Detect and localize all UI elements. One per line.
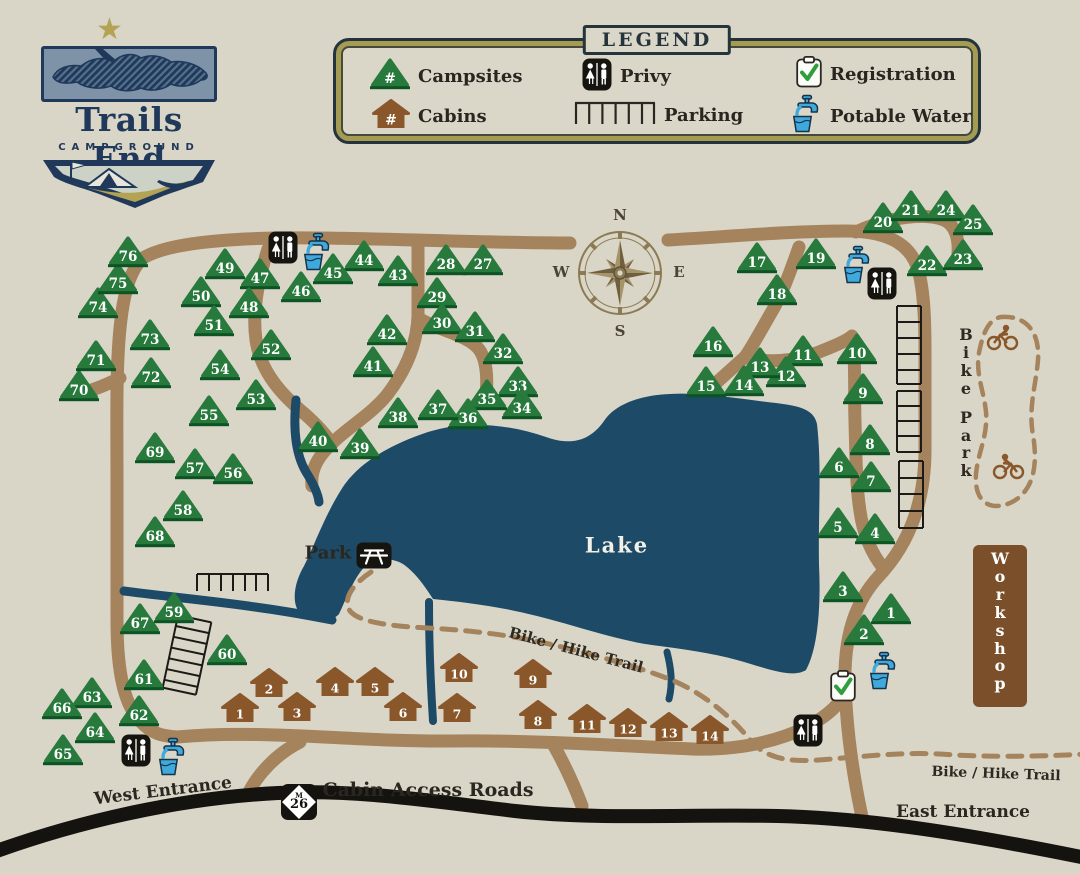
compass-rose xyxy=(579,232,661,314)
legend-item-campsites: # Campsites xyxy=(370,58,523,95)
road-inner-right-lake xyxy=(716,357,745,383)
campsite-tree-icon: # xyxy=(370,58,410,95)
legend-item-parking: Parking xyxy=(574,101,743,129)
legend-item-privy: Privy xyxy=(582,58,671,95)
legend-item-registration: Registration xyxy=(796,56,956,92)
compass-east-label: E xyxy=(673,263,684,281)
campground-map: 1234567891011121314151617181920212223242… xyxy=(0,0,1080,875)
legend-privy-label: Privy xyxy=(620,66,671,87)
privy-icon xyxy=(582,58,612,95)
legend-item-potable-water: Potable Water xyxy=(792,94,972,138)
legend-cabins-label: Cabins xyxy=(418,106,487,127)
legend-panel: LEGEND # Campsites # Cabins Privy Parkin… xyxy=(333,38,981,144)
registration-clipboard-icon xyxy=(796,56,822,92)
star-icon: ★ xyxy=(96,12,123,47)
cabin-access-roads-label: Cabin Access Roads xyxy=(322,779,533,801)
stream-southeast xyxy=(667,652,671,699)
m26-number: 26 xyxy=(290,799,308,811)
parking-lot-west xyxy=(163,615,212,694)
logo-emblem xyxy=(41,156,217,210)
legend-potable-water-label: Potable Water xyxy=(830,106,972,127)
legend-title: LEGEND xyxy=(583,25,731,55)
svg-text:#: # xyxy=(384,71,396,87)
compass-west-label: W xyxy=(553,263,570,281)
highway-m26-sign: M 26 xyxy=(281,784,317,820)
workshop-label: Workshop xyxy=(973,550,1027,693)
cyclist-icon xyxy=(988,325,1017,349)
legend-registration-label: Registration xyxy=(830,64,956,85)
upper-peninsula-silhouette xyxy=(47,49,211,93)
legend-item-cabins: # Cabins xyxy=(372,99,487,133)
cyclist-icon xyxy=(994,454,1023,478)
parking-lot-park xyxy=(197,574,268,591)
svg-text:#: # xyxy=(385,113,397,129)
parking-icon xyxy=(574,101,656,129)
east-entrance-label: East Entrance xyxy=(896,802,1030,822)
compass-north-label: N xyxy=(613,206,627,224)
lake-shape xyxy=(295,394,820,674)
bike-park-label: BikePark xyxy=(953,326,979,480)
legend-campsites-label: Campsites xyxy=(418,66,523,87)
road-mid-branch xyxy=(418,318,487,396)
stream-south xyxy=(429,602,433,721)
bike-park-loop-path xyxy=(976,317,1038,506)
logo-badge xyxy=(41,46,217,102)
lake-label: Lake xyxy=(585,533,649,558)
park-label: Park xyxy=(305,543,352,564)
compass-south-label: S xyxy=(615,322,626,340)
legend-parking-label: Parking xyxy=(664,105,743,126)
cabin-house-icon: # xyxy=(372,99,410,133)
logo-subtitle: CAMPGROUND xyxy=(38,142,220,153)
potable-water-icon xyxy=(792,94,822,138)
campground-logo: ★ Trails End CAMPGROUND xyxy=(38,16,220,208)
road-s-spur xyxy=(553,744,582,806)
